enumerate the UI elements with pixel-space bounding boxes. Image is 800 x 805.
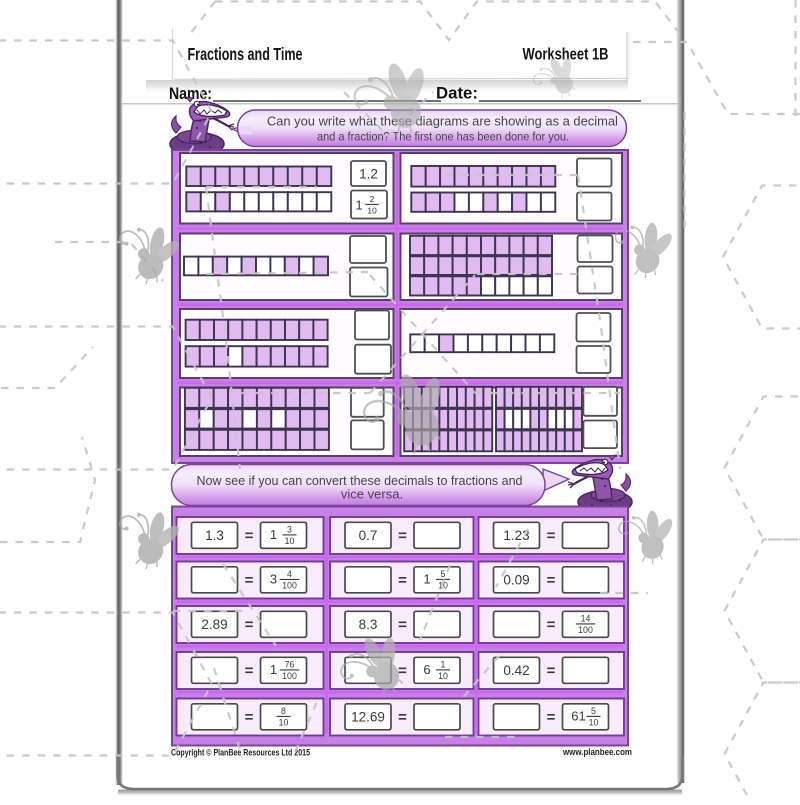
svg-text:1: 1	[270, 662, 277, 677]
svg-text:3: 3	[270, 572, 277, 587]
svg-text:10: 10	[589, 717, 599, 727]
svg-text:100: 100	[282, 580, 297, 590]
svg-text:3: 3	[287, 524, 292, 534]
svg-text:5: 5	[441, 569, 446, 579]
svg-text:1.23: 1.23	[503, 528, 529, 543]
svg-text:0.42: 0.42	[503, 663, 529, 678]
svg-text:76: 76	[285, 659, 295, 669]
svg-text:=: =	[245, 528, 254, 545]
svg-text:=: =	[245, 572, 254, 589]
svg-text:10: 10	[367, 205, 377, 215]
svg-text:61: 61	[571, 709, 585, 724]
svg-text:1: 1	[441, 659, 446, 669]
svg-text:=: =	[398, 617, 407, 634]
svg-text:8.3: 8.3	[359, 617, 378, 632]
svg-text:0.09: 0.09	[503, 573, 529, 588]
svg-text:14: 14	[581, 613, 591, 623]
svg-text:6: 6	[423, 662, 430, 677]
svg-text:=: =	[547, 663, 556, 680]
svg-text:100: 100	[578, 625, 593, 635]
svg-text:=: =	[547, 617, 556, 634]
svg-text:1.3: 1.3	[205, 528, 224, 543]
svg-text:100: 100	[282, 671, 297, 681]
svg-text:=: =	[398, 709, 407, 726]
svg-text:2: 2	[370, 194, 375, 204]
svg-text:vice versa.: vice versa.	[341, 487, 403, 502]
svg-text:Fractions and Time: Fractions and Time	[188, 44, 303, 64]
svg-text:1.2: 1.2	[359, 167, 378, 182]
svg-text:1: 1	[270, 527, 277, 542]
svg-text:5: 5	[591, 706, 596, 716]
svg-text:=: =	[398, 663, 407, 680]
svg-text:=: =	[398, 528, 407, 545]
svg-text:10: 10	[438, 671, 448, 681]
svg-text:10: 10	[279, 717, 289, 727]
svg-text:10: 10	[285, 536, 295, 546]
svg-text:8: 8	[281, 706, 286, 716]
svg-text:=: =	[245, 617, 254, 634]
svg-text:4: 4	[287, 569, 292, 579]
svg-text:=: =	[245, 709, 254, 726]
svg-text:1: 1	[423, 572, 430, 587]
svg-text:=: =	[547, 709, 556, 726]
svg-text:2.89: 2.89	[201, 617, 227, 632]
svg-text:1: 1	[355, 198, 362, 213]
svg-text:=: =	[398, 572, 407, 589]
svg-text:12.69: 12.69	[351, 710, 385, 725]
svg-text:Copyright © PlanBee Resources: Copyright © PlanBee Resources Ltd 2015	[171, 748, 310, 758]
svg-text:and a fraction? The first one: and a fraction? The first one has been d…	[317, 130, 569, 144]
svg-text:Date:: Date:	[436, 84, 478, 103]
svg-text:=: =	[547, 572, 556, 589]
svg-text:=: =	[547, 528, 556, 545]
svg-text:Can you write what these diagr: Can you write what these diagrams are sh…	[267, 114, 618, 129]
svg-text:0.7: 0.7	[359, 528, 378, 543]
svg-text:www.planbee.com: www.planbee.com	[562, 747, 632, 757]
svg-text:=: =	[245, 663, 254, 680]
